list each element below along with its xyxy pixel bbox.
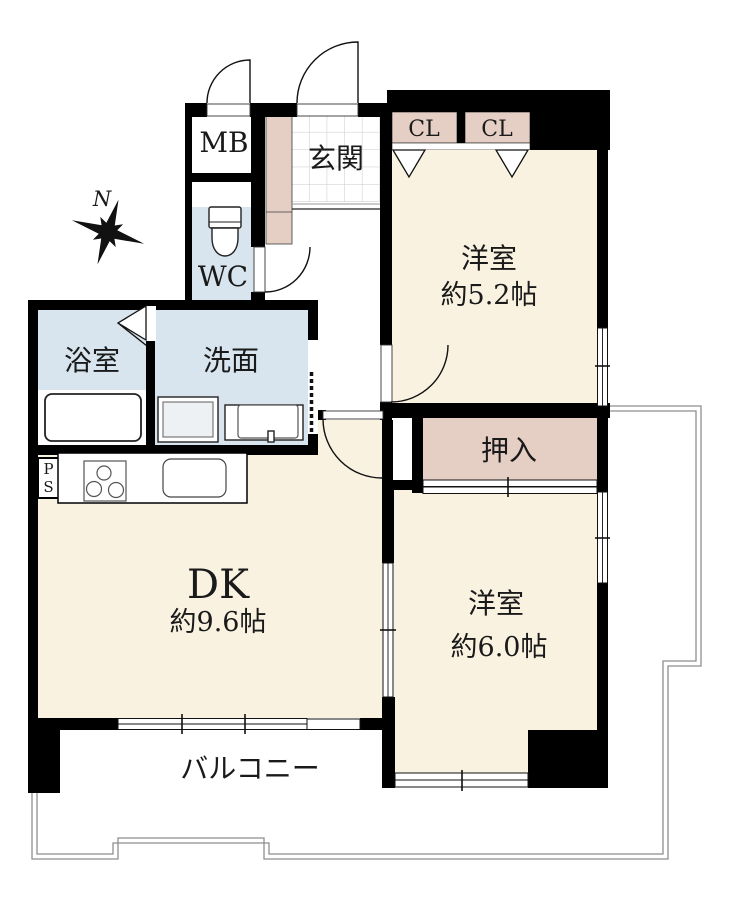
dk-size: 約9.6帖: [170, 607, 267, 638]
floor-plan: N MB 玄関 WC CL CL 洋室 約5.2帖 浴室 洗面 P S DK 約…: [0, 0, 730, 904]
balcony-label: バルコニー: [180, 752, 319, 785]
western-room-1-label: 洋室: [461, 242, 517, 275]
toilet-icon: [209, 207, 241, 256]
dk-label: DK: [187, 562, 250, 608]
western-room-2-size: 約6.0帖: [451, 632, 548, 663]
stove-icon: [84, 461, 126, 501]
dead-space: [393, 420, 412, 480]
shoe-cabinet: [266, 116, 292, 244]
closet-sill: [392, 143, 530, 150]
washer-pan-icon: [158, 397, 218, 442]
window-western2-east: [595, 492, 610, 583]
oshiire-sliding-door: [423, 477, 597, 497]
wc-label: WC: [198, 260, 248, 293]
meter-box-label: MB: [199, 126, 248, 159]
washroom-label: 洗面: [203, 344, 259, 377]
bathtub-icon: [45, 394, 141, 441]
door-entrance: [297, 42, 358, 116]
floor-plan-svg: N MB 玄関 WC CL CL 洋室 約5.2帖 浴室 洗面 P S DK 約…: [0, 0, 730, 904]
room-western-2: [394, 483, 597, 773]
window-dk-south-fixed: [307, 719, 360, 730]
door-meter-box: [207, 60, 250, 116]
compass-north-label: N: [92, 187, 112, 211]
pipe-space-label-p: P: [43, 460, 53, 478]
oshiire-label: 押入: [481, 434, 537, 467]
door-washroom-accordion: [308, 340, 318, 434]
bathroom-label: 浴室: [64, 344, 120, 377]
western-room-2-label: 洋室: [468, 587, 524, 620]
room-western-1-floor: [392, 150, 597, 403]
entrance-label: 玄関: [308, 142, 364, 175]
western-room-1-size: 約5.2帖: [441, 280, 538, 311]
closet-left-label: CL: [408, 117, 440, 142]
vanity-sink-icon: [225, 405, 303, 442]
window-western2-south: [395, 770, 528, 791]
pipe-space-label-s: S: [43, 478, 53, 496]
kitchen-sink-icon: [163, 459, 226, 497]
closet-right-label: CL: [481, 117, 513, 142]
room-wc-upper: [192, 182, 257, 207]
window-western1-east: [595, 328, 610, 406]
